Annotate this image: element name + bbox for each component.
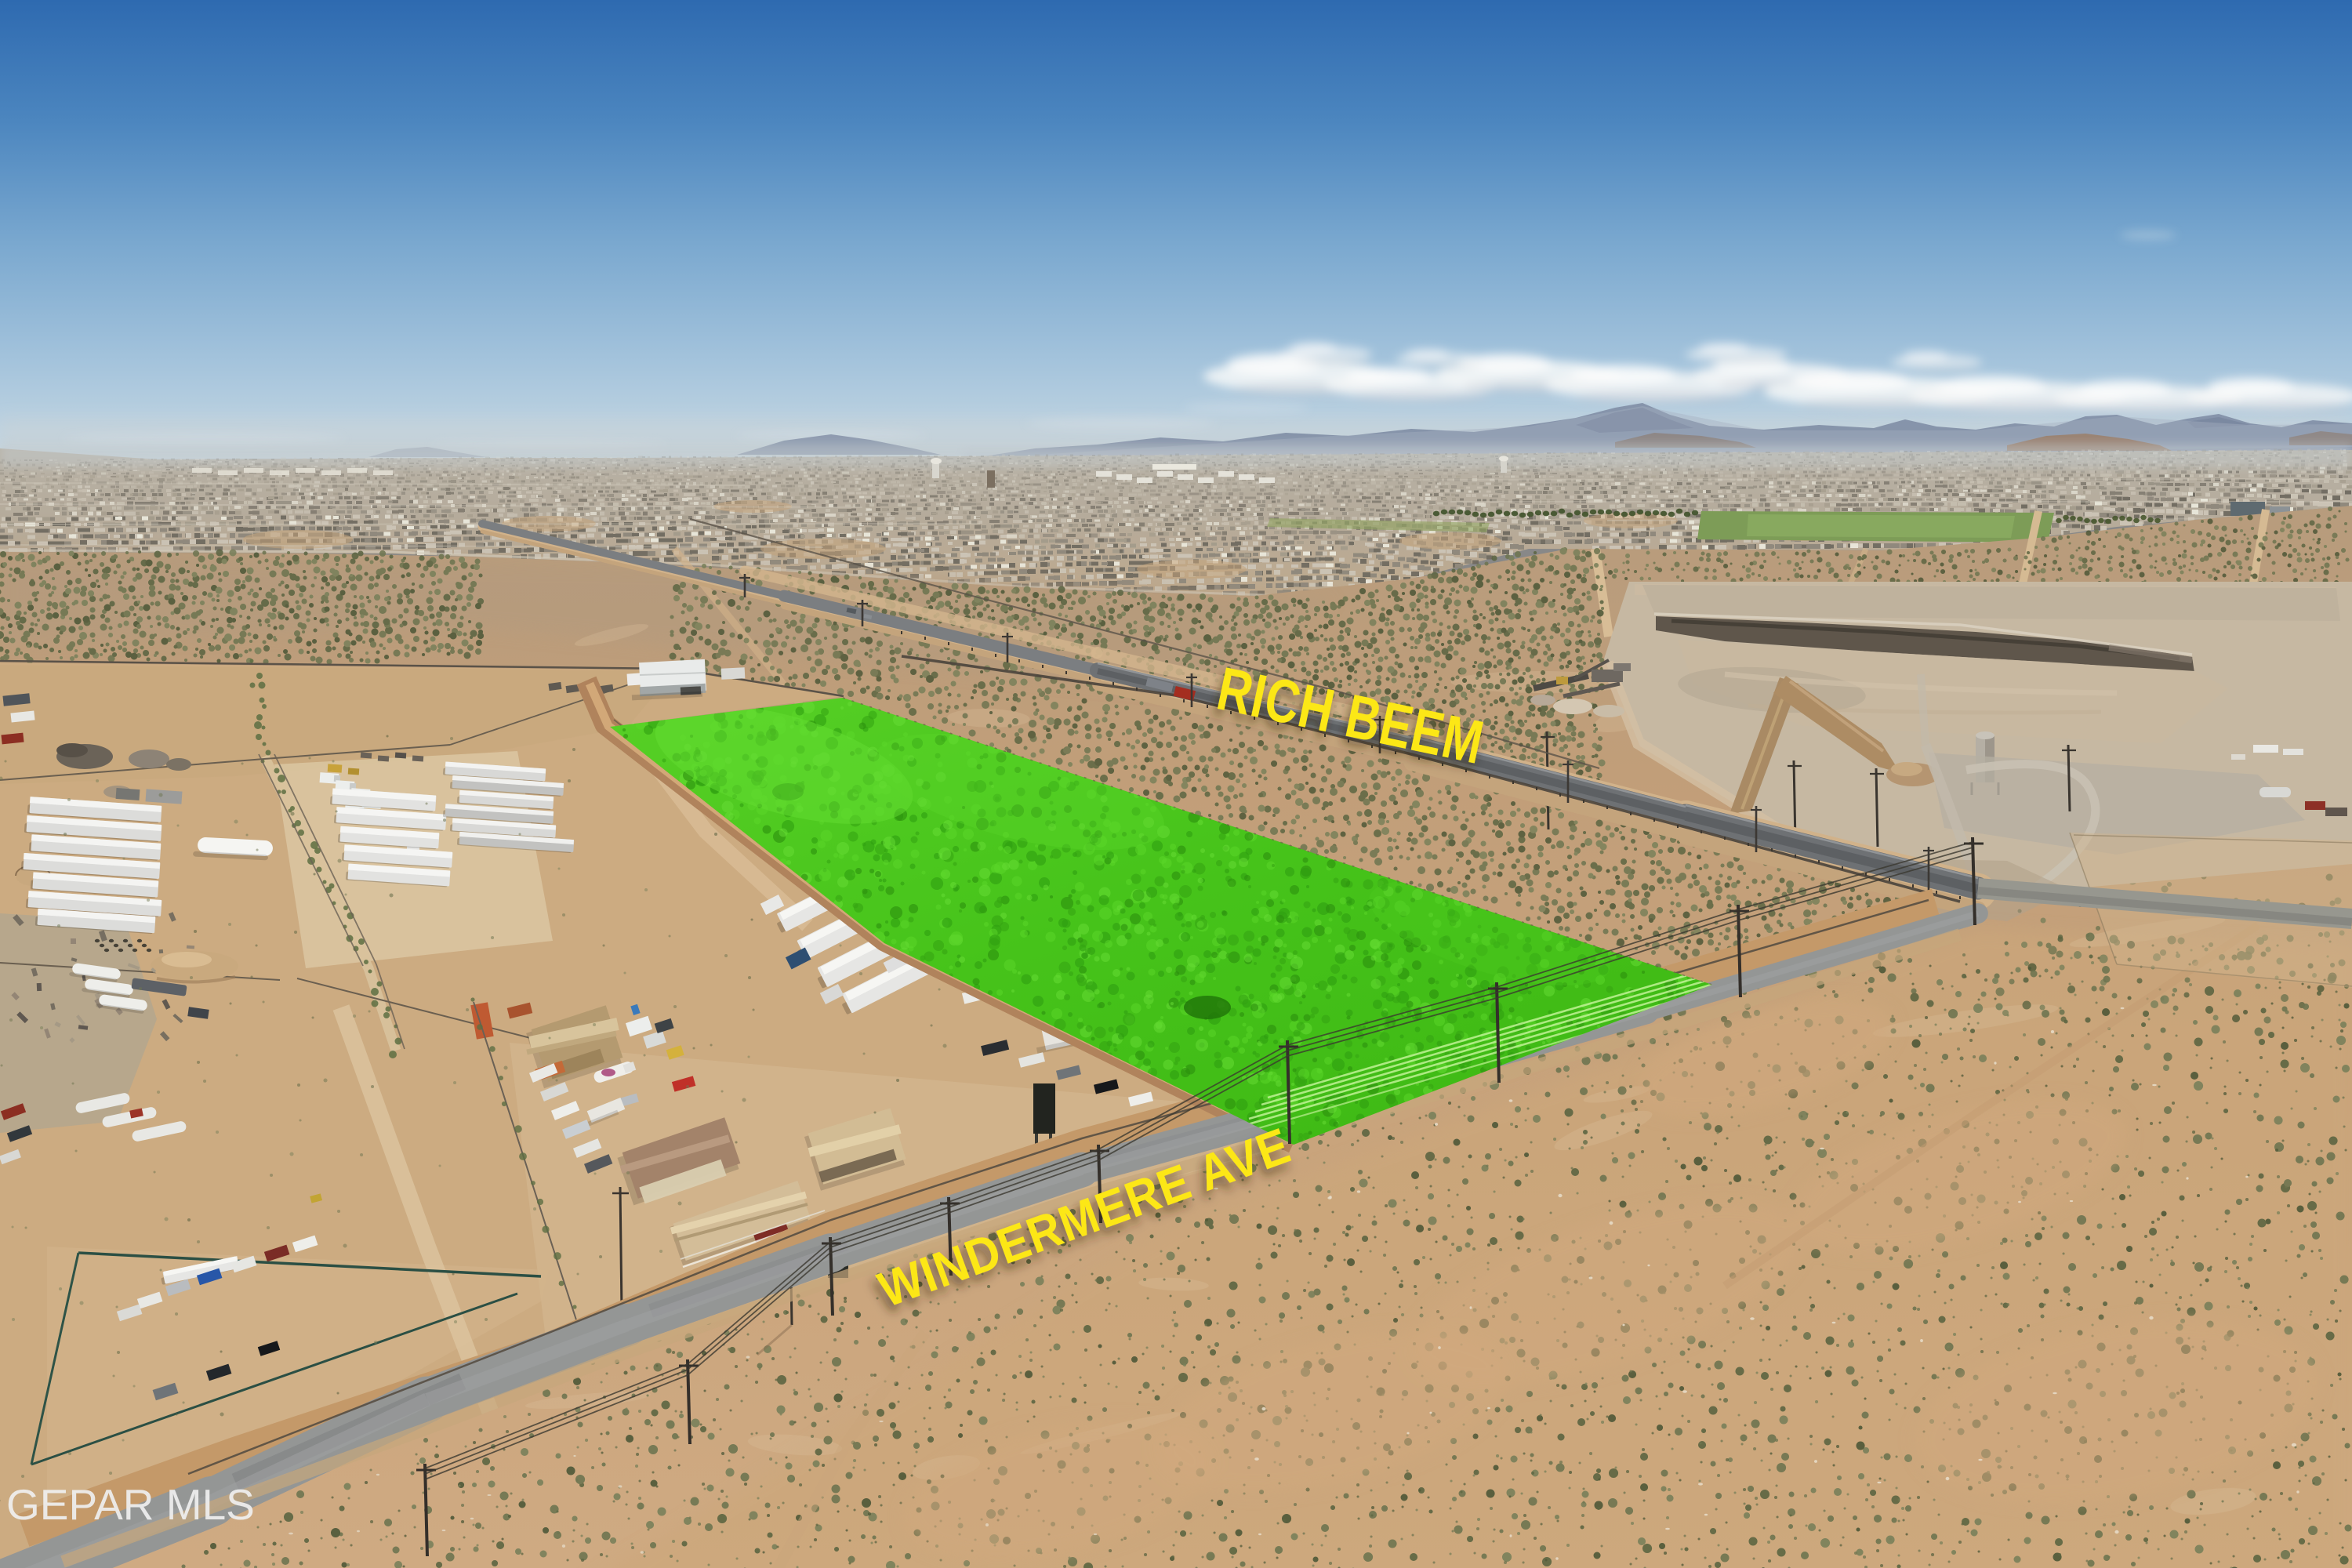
svg-text:GEPAR MLS: GEPAR MLS [6, 1480, 255, 1529]
